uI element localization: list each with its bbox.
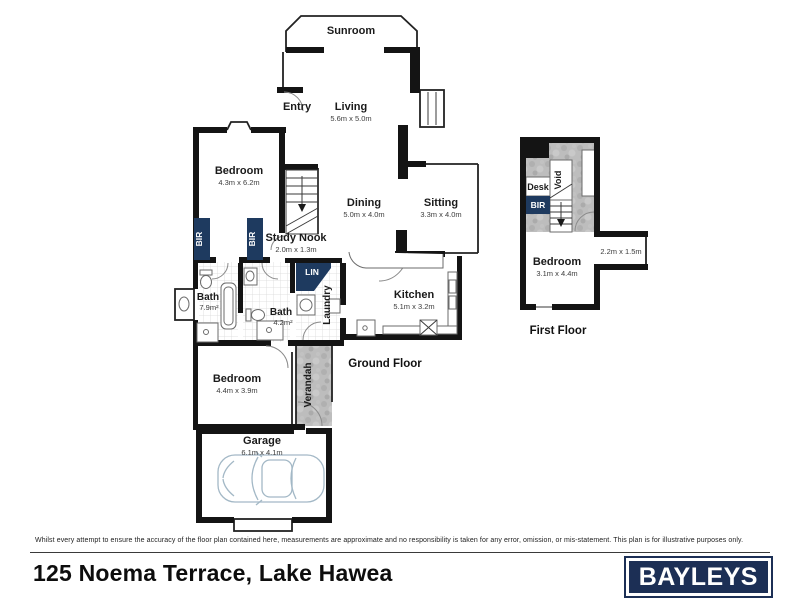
kitchen-sink (449, 280, 456, 293)
closet-label-bir: BIR (194, 232, 204, 247)
first-floor-plan: Desk BIR Void Bedroom 3.1m x 4.4m 2.2m x… (520, 137, 648, 337)
basin (246, 271, 254, 281)
floor-plan-page: Sunroom Living 5.6m x 5.0m Entry Bedroom… (0, 0, 800, 600)
first-floor-title: First Floor (530, 325, 587, 337)
room-label-bath-main: Bath (197, 292, 219, 303)
room-label-bedroom3: Bedroom (533, 256, 582, 268)
first-floor-window-recess (582, 150, 595, 196)
basin (179, 297, 189, 311)
kitchen-sink (449, 296, 456, 309)
room-dims-dining: 5.0m x 4.0m (343, 210, 384, 219)
bayleys-logo: BAYLEYS (624, 556, 773, 598)
room-label-bedroom1: Bedroom (215, 165, 264, 177)
room-label-entry: Entry (283, 101, 312, 113)
kitchen-counter (349, 252, 443, 268)
bedroom2-door-arc (266, 346, 288, 368)
room-dims-study-nook: 2.0m x 1.3m (275, 245, 316, 254)
shower-drain (204, 330, 209, 335)
room-dims-living: 5.6m x 5.0m (330, 114, 371, 123)
ground-floor-plan: Sunroom Living 5.6m x 5.0m Entry Bedroom… (175, 16, 478, 531)
toilet (201, 276, 212, 289)
car (218, 452, 324, 505)
room-label-study-nook: Study Nook (265, 232, 327, 244)
room-area-bath-second: 4.2m² (273, 318, 293, 327)
footer-divider (30, 552, 770, 553)
bayleys-logo-text: BAYLEYS (629, 561, 768, 593)
room-dims-bedroom2: 4.4m x 3.9m (216, 386, 257, 395)
shower-drain (267, 328, 272, 333)
washing-machine-door (300, 299, 312, 311)
room-label-sunroom: Sunroom (327, 25, 375, 37)
room-label-bath-second: Bath (270, 307, 292, 318)
room-dims-sitting: 3.3m x 4.0m (420, 210, 461, 219)
nook-dims: 2.2m x 1.5m (600, 247, 641, 256)
room-label-sitting: Sitting (424, 197, 458, 209)
ground-floor-title: Ground Floor (348, 358, 422, 370)
closet-label-bir: BIR (247, 232, 257, 247)
appliance-knob (363, 326, 367, 330)
label-void: Void (553, 171, 563, 190)
stair-arrow-down (298, 204, 306, 212)
bedroom1-bay-window (227, 122, 251, 130)
room-label-garage: Garage (243, 435, 281, 447)
living-bay-window (420, 90, 444, 127)
floor-plan-drawing: Sunroom Living 5.6m x 5.0m Entry Bedroom… (0, 0, 800, 535)
garage-door-recess (234, 519, 292, 531)
room-label-verandah: Verandah (303, 362, 314, 407)
room-label-kitchen: Kitchen (394, 289, 435, 301)
room-area-bath-main: 7.9m² (199, 303, 219, 312)
room-dims-garage: 6.1m x 4.1m (241, 448, 282, 457)
disclaimer-text: Whilst every attempt to ensure the accur… (35, 537, 765, 544)
room-label-bedroom2: Bedroom (213, 373, 262, 385)
ground-stairs (286, 170, 318, 234)
label-desk: Desk (527, 182, 550, 192)
room-dims-bedroom3: 3.1m x 4.4m (536, 269, 577, 278)
toilet (252, 310, 265, 321)
room-label-living: Living (335, 101, 367, 113)
label-bir-first: BIR (531, 200, 546, 210)
closet-label-lin: LIN (305, 267, 319, 277)
room-dims-bedroom1: 4.3m x 6.2m (218, 178, 259, 187)
room-label-dining: Dining (347, 197, 381, 209)
toilet-tank (246, 309, 251, 321)
address-title: 125 Noema Terrace, Lake Hawea (33, 560, 393, 587)
bathtub-inner (224, 287, 233, 325)
room-dims-kitchen: 5.1m x 3.2m (393, 302, 434, 311)
verandah-deck (296, 344, 332, 426)
room-label-laundry: Laundry (322, 285, 333, 325)
toilet (200, 270, 212, 275)
